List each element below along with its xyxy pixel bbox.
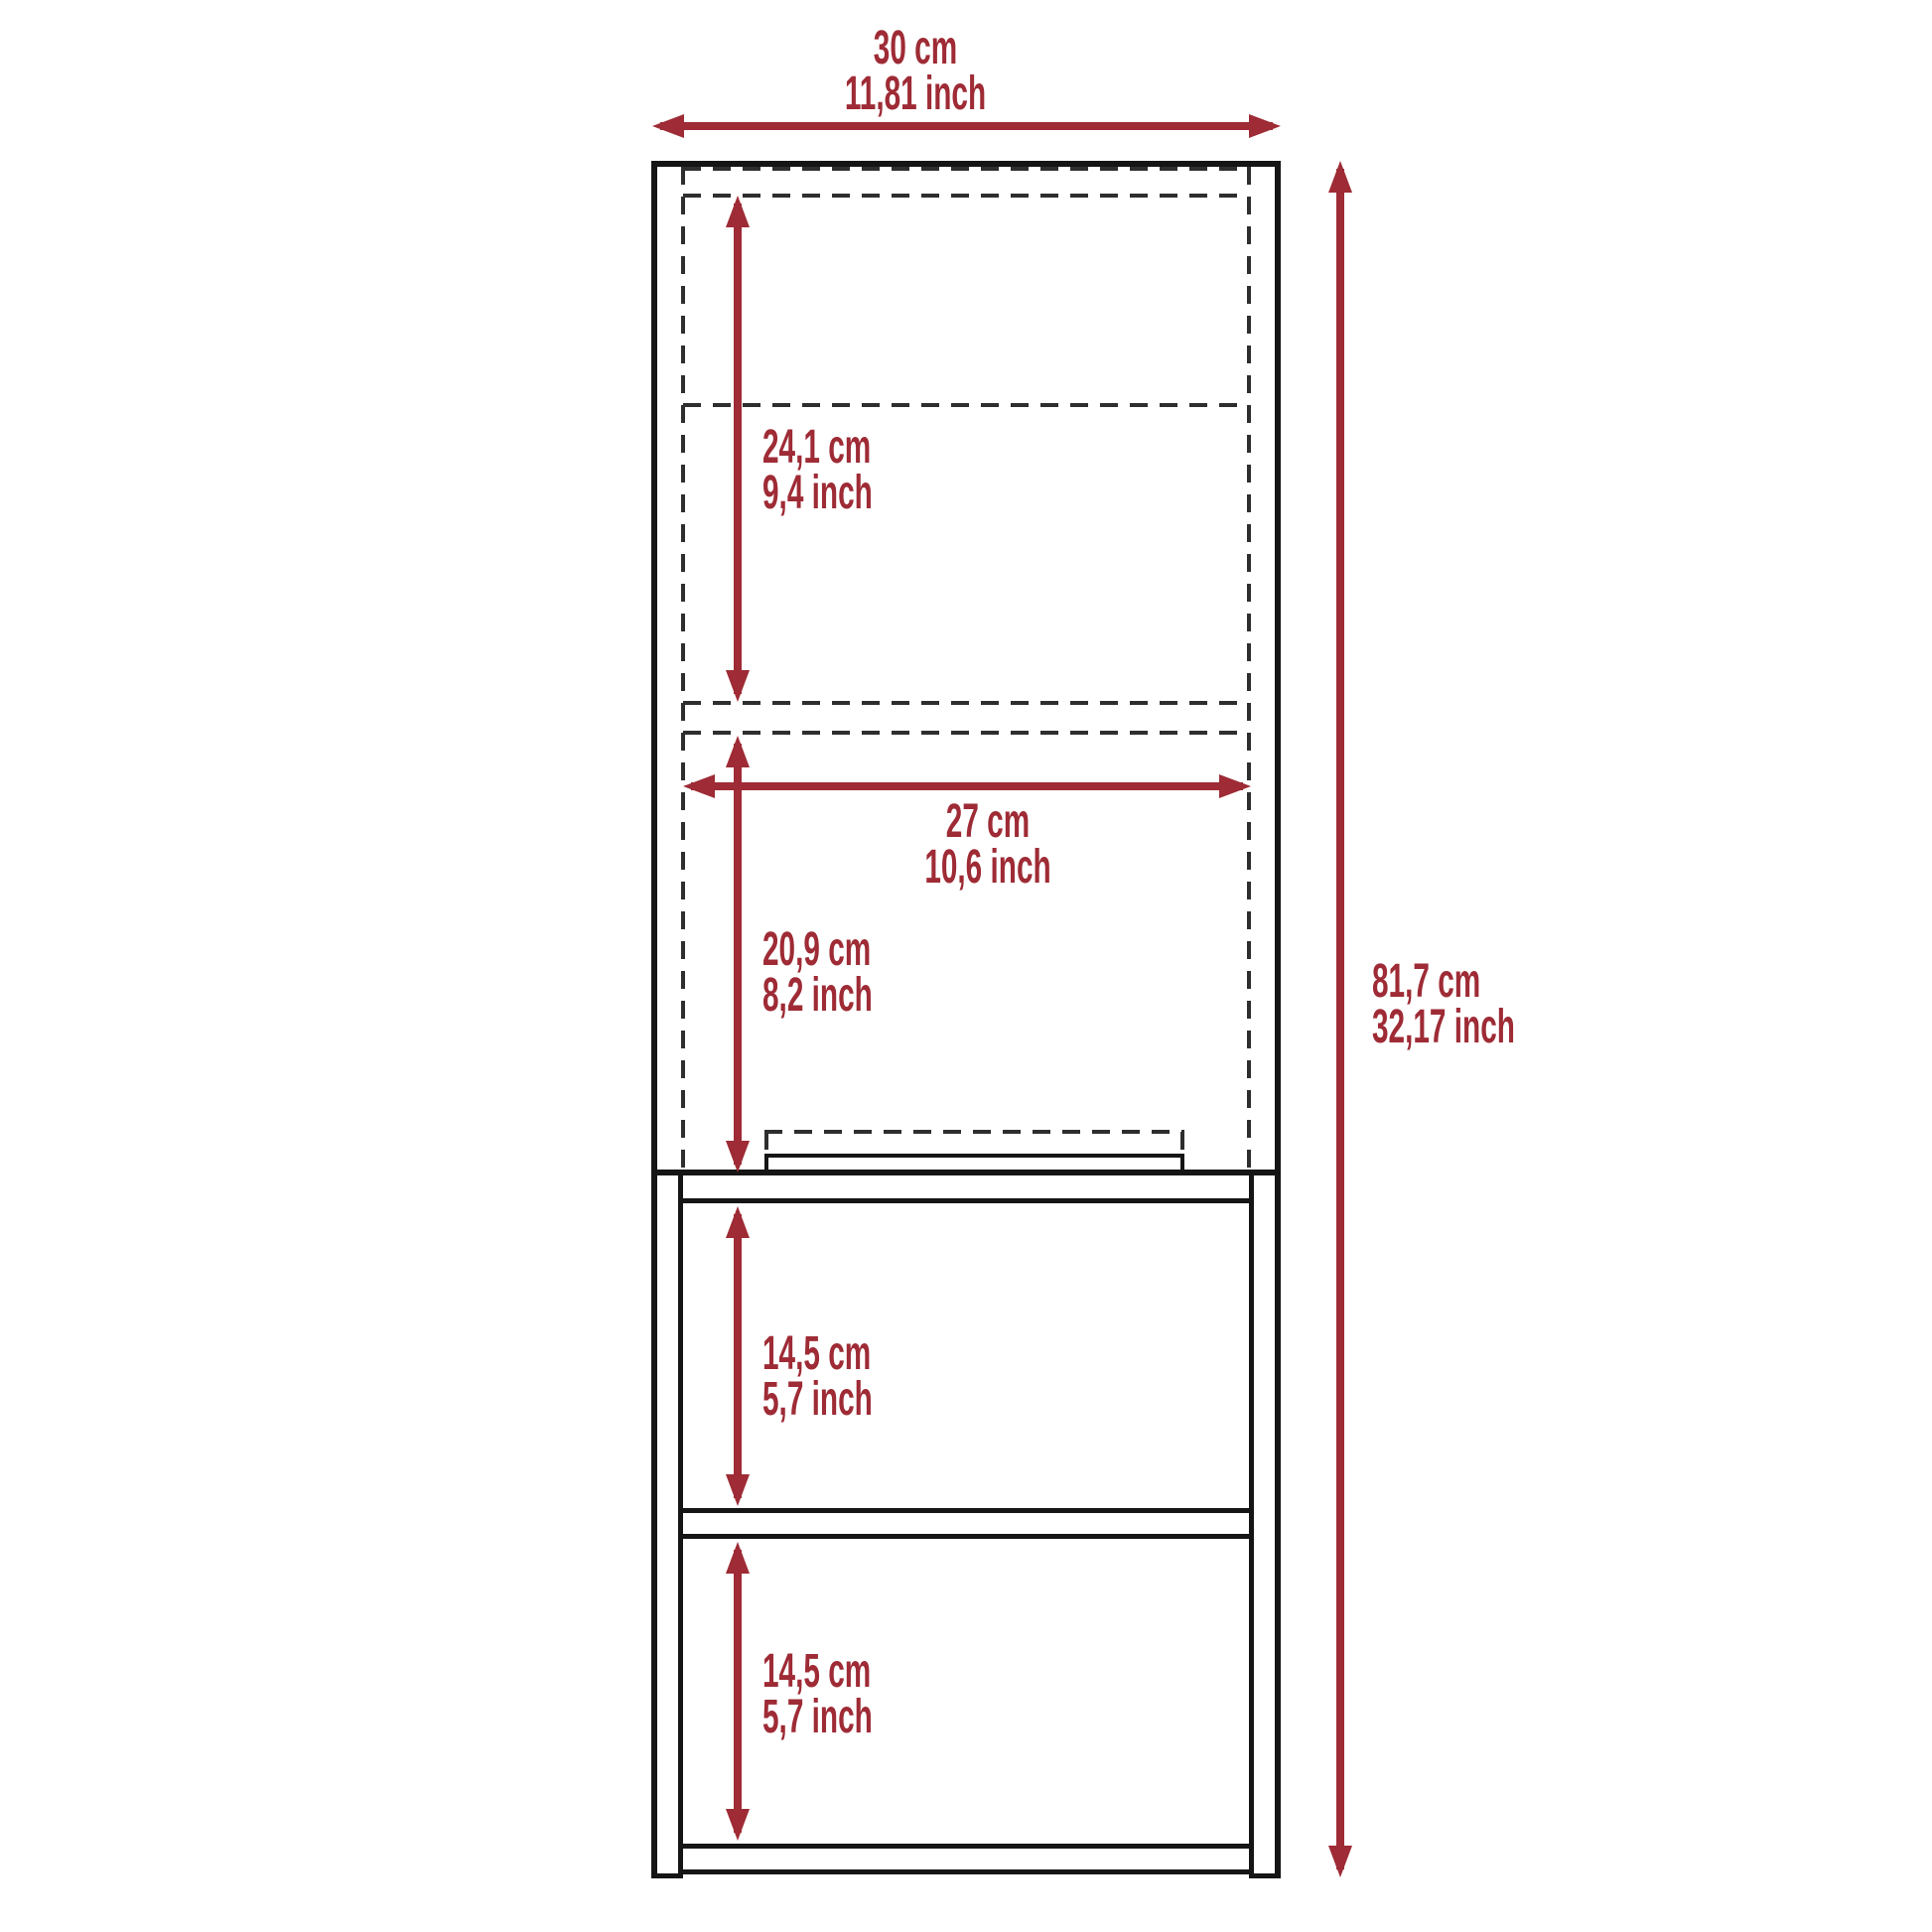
top-shelf-height-label: 14,5 cm 5,7 inch	[762, 1331, 940, 1423]
arrow-shaft	[691, 782, 1243, 790]
arrowhead-down	[726, 1809, 750, 1841]
arrow-shaft	[734, 204, 742, 694]
dimension-inch: 11,81 inch	[792, 71, 1038, 117]
overall-width-arrow	[652, 112, 1281, 140]
dimension-inch: 8,2 inch	[762, 973, 873, 1019]
arrow-shaft	[734, 1214, 742, 1498]
dimension-inch: 5,7 inch	[762, 1377, 873, 1423]
arrowhead-up	[1328, 161, 1352, 193]
lower-interior-height-arrow	[724, 736, 752, 1173]
arrow-shaft	[734, 1550, 742, 1833]
arrow-shaft	[660, 122, 1273, 130]
bottom-shelf-height-arrow	[724, 1542, 752, 1841]
dimension-cm: 24,1 cm	[762, 425, 873, 471]
arrowhead-up	[726, 1542, 750, 1574]
arrowhead-left	[683, 774, 715, 798]
dimension-inch: 32,17 inch	[1372, 1005, 1515, 1050]
overall-height-arrow	[1326, 161, 1354, 1877]
door-width-label: 27 cm 10,6 inch	[789, 799, 1186, 891]
cabinet-dimension-diagram: 30 cm 11,81 inch 81,7 cm 32,17 inch 24,1…	[0, 0, 1932, 1932]
arrowhead-left	[652, 114, 684, 138]
arrowhead-up	[726, 736, 750, 767]
arrowhead-right	[1219, 774, 1251, 798]
overall-height-label: 81,7 cm 32,17 inch	[1372, 959, 1602, 1050]
overall-width-label: 30 cm 11,81 inch	[717, 26, 1114, 117]
arrowhead-down	[1328, 1846, 1352, 1877]
arrowhead-down	[726, 1141, 750, 1173]
dimension-annotations: 30 cm 11,81 inch 81,7 cm 32,17 inch 24,1…	[0, 0, 1932, 1932]
dimension-cm: 14,5 cm	[762, 1331, 873, 1377]
dimension-cm: 27 cm	[865, 799, 1111, 845]
arrowhead-down	[726, 1474, 750, 1506]
dimension-inch: 5,7 inch	[762, 1695, 873, 1740]
dimension-cm: 14,5 cm	[762, 1649, 873, 1695]
arrow-shaft	[734, 744, 742, 1165]
arrowhead-up	[726, 1206, 750, 1238]
dimension-inch: 9,4 inch	[762, 471, 873, 516]
arrowhead-down	[726, 670, 750, 702]
lower-interior-height-label: 20,9 cm 8,2 inch	[762, 927, 940, 1019]
upper-interior-height-arrow	[724, 196, 752, 702]
bottom-shelf-height-label: 14,5 cm 5,7 inch	[762, 1649, 940, 1740]
dimension-cm: 81,7 cm	[1372, 959, 1515, 1005]
dimension-cm: 30 cm	[792, 26, 1038, 71]
upper-interior-height-label: 24,1 cm 9,4 inch	[762, 425, 940, 516]
top-shelf-height-arrow	[724, 1206, 752, 1506]
dimension-cm: 20,9 cm	[762, 927, 873, 973]
arrowhead-up	[726, 196, 750, 227]
arrow-shaft	[1336, 169, 1344, 1869]
dimension-inch: 10,6 inch	[865, 845, 1111, 891]
arrowhead-right	[1249, 114, 1281, 138]
